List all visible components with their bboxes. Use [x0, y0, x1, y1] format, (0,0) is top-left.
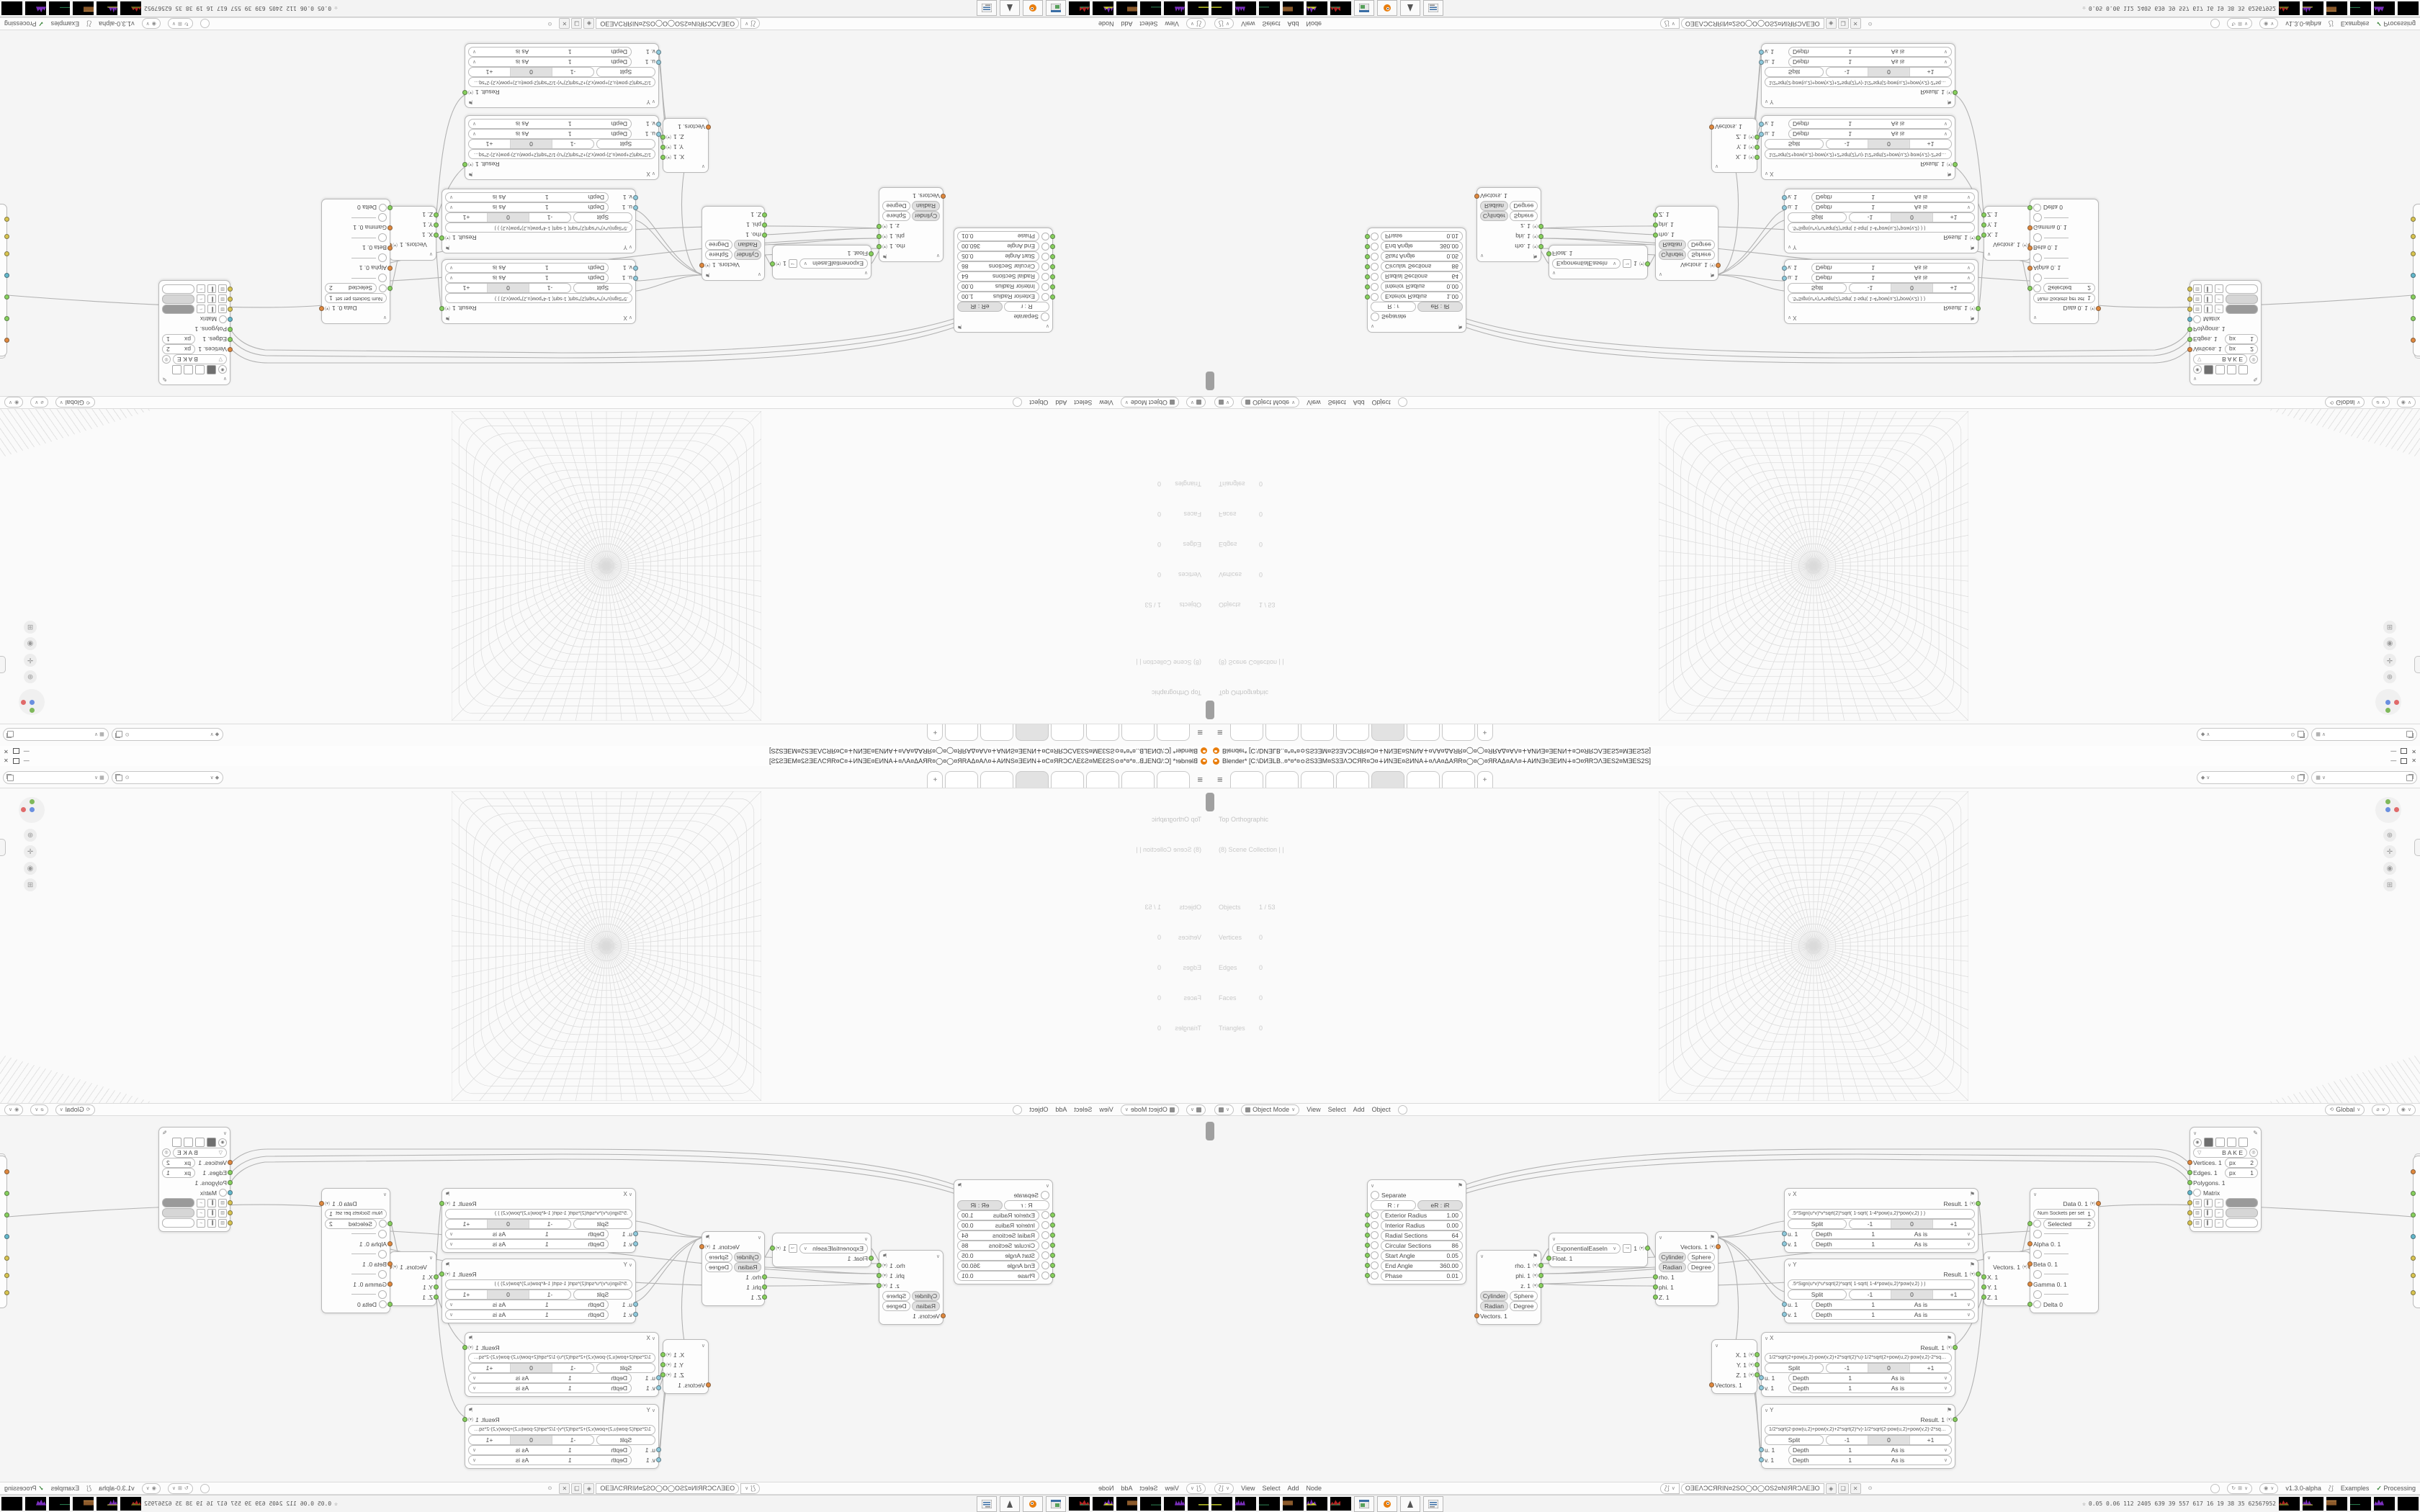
display-verts-toggle[interactable] [2204, 365, 2213, 374]
workspace-tab[interactable] [1301, 771, 1334, 788]
face-color-swatch[interactable] [2226, 284, 2258, 294]
input-socket[interactable] [2187, 1190, 2192, 1195]
input-socket[interactable] [941, 1313, 946, 1318]
monitor-tile[interactable] [1307, 1497, 1327, 1511]
coord-mode-toggle[interactable]: CylinderSphere [1480, 212, 1538, 222]
wrap-segment[interactable]: -10+1 [468, 1363, 594, 1373]
unlink-button[interactable]: ✕ [559, 19, 570, 30]
menu-add[interactable]: Add [1055, 399, 1067, 406]
input-socket[interactable] [387, 1302, 393, 1307]
output-socket[interactable] [1976, 1272, 1981, 1277]
coord-mode-toggle[interactable]: CylinderSphere [705, 1252, 761, 1262]
edge-width-field[interactable]: px1 [2225, 335, 2258, 345]
coord-mode-toggle[interactable]: CylinderSphere [1659, 251, 1715, 261]
depth-field[interactable]: Depth1As is∨ [1788, 58, 1952, 68]
input-socket[interactable] [1365, 1223, 1370, 1228]
display-edges-toggle[interactable] [2215, 365, 2225, 374]
input-socket[interactable] [1365, 264, 1370, 269]
node-formula-y[interactable]: ∨ Y⚑ Result. 1(▾) .5*Sign(u*v)*u*sqrt(2)… [1784, 189, 1978, 253]
input-socket[interactable] [1365, 284, 1370, 289]
output-socket[interactable] [1538, 244, 1543, 249]
input-socket[interactable] [1365, 1273, 1370, 1278]
output-socket[interactable] [319, 306, 324, 311]
node-viewer-draw[interactable]: ∨✎ ◉ ▽B A K E◎ Vertices. 1px2 Edges. 1px… [2190, 1127, 2262, 1232]
input-socket[interactable] [1759, 122, 1764, 127]
input-socket[interactable] [1365, 1233, 1370, 1238]
monitor-tile[interactable] [2350, 1, 2371, 15]
formula-field[interactable]: .5*Sign(u*v)*v*sqrt(2)*sqrt( 1-sqrt( 1-4… [445, 294, 632, 304]
input-socket[interactable] [1653, 233, 1658, 238]
edge-color-swatch[interactable] [2226, 1208, 2258, 1218]
monitor-tile[interactable] [1116, 1, 1137, 15]
output-socket[interactable] [660, 155, 665, 160]
param-field[interactable]: Radial Sections64 [957, 272, 1039, 282]
monitor-tile[interactable] [1211, 1497, 1232, 1511]
input-socket[interactable] [1050, 1273, 1055, 1278]
restore-button[interactable] [13, 748, 19, 754]
input-socket[interactable] [434, 1284, 439, 1290]
camera-view-icon[interactable]: ◉ [24, 862, 37, 875]
display-edges-toggle[interactable] [195, 365, 205, 374]
separate-toggle[interactable]: Separate [1381, 314, 1407, 321]
selected-field[interactable]: Selected2 [2043, 284, 2095, 294]
add-workspace-button[interactable]: + [927, 724, 943, 741]
point-size-field[interactable]: px2 [162, 1158, 195, 1168]
new-viewlayer-icon[interactable] [7, 775, 14, 781]
input-socket[interactable] [656, 1375, 661, 1380]
node-viewer-draw[interactable]: ∨✎ ◉ ▽B A K E◎ Vertices. 1px2 Edges. 1px… [2190, 280, 2262, 385]
snap-dropdown[interactable]: ⌀∨ [30, 1104, 48, 1115]
sverchok-node-editor[interactable]: ∨⚑ Separate R : reR : iR Exterior Radius… [1210, 1116, 2420, 1482]
draw-mode-dropdown[interactable]: ◉∨ [2259, 1483, 2278, 1494]
processing-toggle[interactable]: ✓ Processing [4, 20, 44, 28]
viewlayer-selector[interactable]: ▦∨ [2311, 771, 2417, 784]
editor-type-button[interactable]: ⟅⟆∨ [1214, 19, 1234, 30]
param-field[interactable]: Circular Sections86 [957, 262, 1039, 272]
node-formula-y[interactable]: ∨ Y⚑ Result. 1(▾) .5*Sign(u*v)*u*sqrt(2)… [1784, 1259, 1978, 1323]
copy-datablock-button[interactable]: ❏ [1838, 19, 1849, 30]
wrap-segment[interactable]: -10+1 [445, 1219, 571, 1229]
menu-node[interactable]: Node [1098, 20, 1114, 27]
draw-mode-dropdown[interactable]: ◉∨ [142, 19, 161, 30]
display-curve-toggle[interactable] [172, 365, 181, 374]
add-workspace-button[interactable]: + [1477, 771, 1493, 788]
wrap-segment[interactable]: -10+1 [1826, 1435, 1952, 1445]
param-field[interactable]: Phase0.01 [957, 1271, 1039, 1281]
monitor-tile[interactable] [73, 1497, 94, 1511]
input-socket[interactable] [2187, 1200, 2192, 1205]
axis-y-dot[interactable] [30, 799, 35, 804]
workspace-tab[interactable] [1442, 724, 1475, 741]
tree-name-field[interactable]: OƎEΛƆCЯRIN¤2SO◯O◯OS2¤NIЯRƆΛEƎO [1681, 1483, 1824, 1494]
hamburger-menu-icon[interactable]: ≡ [1197, 727, 1203, 738]
camera-view-icon[interactable]: ◉ [2383, 637, 2396, 650]
workspace-tab[interactable] [1230, 771, 1263, 788]
input-socket[interactable] [1365, 244, 1370, 249]
ortho-toggle-icon[interactable]: ⊞ [2383, 878, 2396, 891]
output-socket[interactable] [1538, 1263, 1543, 1268]
param-field[interactable]: End Angle360.00 [957, 1261, 1039, 1271]
input-socket[interactable] [2187, 347, 2192, 352]
minimize-button[interactable]: — [2390, 758, 2396, 764]
tree-browse-button[interactable]: ⟅⟆∨ [1660, 19, 1680, 30]
node-tree-selector[interactable]: ⟅⟆∨ OƎEΛƆCЯRIN¤2SO◯O◯OS2¤NIЯRƆΛEƎO ◈ ❏ ✕ [559, 19, 760, 30]
input-socket[interactable] [941, 194, 946, 199]
node-vector-in[interactable]: ∨ Vectors. 1(▾) X. 1 Y. 1 Z. 1 [1984, 206, 2031, 261]
workspace-tab[interactable] [1051, 771, 1084, 788]
input-socket[interactable] [228, 337, 233, 342]
easing-mode-dropdown[interactable]: ExponentialEaseIn∨ [799, 1243, 868, 1254]
num-sockets-field[interactable]: Num Sockets per set1 [325, 294, 387, 304]
face-color-swatch[interactable] [162, 1218, 194, 1228]
depth-field[interactable]: Depth1As is∨ [468, 130, 632, 140]
monitor-tile[interactable] [1188, 1497, 1209, 1511]
tree-browse-button[interactable]: ⟅⟆∨ [1660, 1483, 1680, 1494]
depth-field[interactable]: Depth1As is∨ [445, 203, 609, 213]
split-button[interactable]: Split [1765, 68, 1824, 78]
mode-dropdown[interactable]: Object Mode∨ [1121, 397, 1179, 408]
input-socket[interactable] [1546, 251, 1551, 256]
output-socket[interactable] [770, 261, 775, 266]
node-vector-in[interactable]: ∨ Vectors. 1(▾) X. 1 Y. 1 Z. 1 [1984, 1251, 2031, 1306]
annotate-circle-icon[interactable] [1398, 398, 1407, 408]
vertex-color-swatch[interactable] [162, 1198, 194, 1207]
split-button[interactable]: Split [573, 213, 632, 223]
copy-datablock-button[interactable]: ❏ [1838, 1483, 1849, 1494]
output-socket[interactable] [1716, 1244, 1721, 1249]
param-field[interactable]: Phase0.01 [1381, 232, 1463, 242]
input-socket[interactable] [869, 251, 874, 256]
input-socket[interactable] [1759, 132, 1764, 137]
input-socket[interactable] [656, 122, 661, 127]
node-input-switch[interactable]: ∨ Data 0. 1(▾) Num Sockets per set1 Sele… [2030, 1188, 2099, 1313]
examples-menu[interactable]: Examples [51, 1485, 80, 1492]
menu-view[interactable]: View [1307, 399, 1320, 406]
angle-mode-toggle[interactable]: RadianDegree [882, 202, 940, 212]
node-formula-y[interactable]: ∨ Y⚑ Result. 1(▾) .5*Sign(u*v)*u*sqrt(2)… [442, 189, 636, 253]
monitor-tile[interactable] [2326, 1497, 2347, 1511]
input-socket[interactable] [228, 1170, 233, 1175]
monitor-tile[interactable] [1, 1497, 22, 1511]
workspace-tab-active[interactable] [1016, 724, 1049, 741]
node-formula-y2[interactable]: ∨ Y⚑ Result. 1(▾) 1/2*sqrt(2-pow(u,2)+po… [465, 43, 659, 108]
param-field[interactable]: Interior Radius0.00 [957, 1220, 1039, 1230]
formula-field[interactable]: 1/2*sqrt(2-pow(u,2)+pow(v,2)+2*sqrt(2)*v… [468, 1425, 655, 1435]
output-socket[interactable] [699, 263, 704, 268]
input-socket[interactable] [1050, 234, 1055, 239]
node-offscreen[interactable] [2413, 1156, 2420, 1308]
edge-color-swatch[interactable] [162, 1208, 194, 1218]
workspace-tab[interactable] [1265, 771, 1299, 788]
angle-mode-toggle[interactable]: RadianDegree [1659, 1262, 1715, 1272]
node-torus[interactable]: ∨⚑ Separate R : reR : iR Exterior Radius… [1367, 228, 1466, 333]
input-socket[interactable] [228, 1190, 233, 1195]
input-socket[interactable] [1782, 1312, 1787, 1317]
processing-toggle[interactable]: ✓ Processing [2376, 1485, 2416, 1493]
taskbar-app-window2[interactable] [977, 1, 997, 17]
torus-mode-toggle[interactable]: R : reR : iR [957, 302, 1049, 312]
output-socket[interactable] [1976, 1201, 1981, 1206]
menu-view[interactable]: View [1165, 1485, 1178, 1492]
split-button[interactable]: Split [1765, 1435, 1824, 1445]
add-workspace-button[interactable]: + [927, 771, 943, 788]
split-button[interactable]: Split [1765, 140, 1824, 150]
wrap-segment[interactable]: -10+1 [445, 284, 571, 294]
menu-add[interactable]: Add [1353, 399, 1365, 406]
depth-field[interactable]: Depth1As is∨ [1788, 1455, 1952, 1465]
fake-user-shield-button[interactable]: ◈ [583, 19, 594, 30]
output-socket[interactable] [1754, 1362, 1760, 1367]
menu-object[interactable]: Object [1029, 1106, 1048, 1113]
input-socket[interactable] [633, 1302, 638, 1307]
output-socket[interactable] [1754, 1352, 1760, 1357]
viewport-3d[interactable]: Top Orthographic (8) Scene Collection | … [1210, 788, 2420, 1103]
display-curve-toggle[interactable] [2238, 365, 2248, 374]
face-color-swatch[interactable] [162, 284, 194, 294]
input-socket[interactable] [1981, 1295, 1986, 1300]
fake-user-shield-button[interactable]: ◈ [583, 1483, 594, 1494]
output-socket[interactable] [1645, 1246, 1650, 1251]
draw-mode-dropdown[interactable]: ◉∨ [2259, 19, 2278, 30]
monitor-tile[interactable] [2398, 1497, 2419, 1511]
taskbar-blender-app[interactable] [1377, 1496, 1397, 1512]
depth-field[interactable]: Depth1As is∨ [1811, 1239, 1975, 1249]
tree-name-field[interactable]: OƎEΛƆCЯRIN¤2SO◯O◯OS2¤NIЯRƆΛEƎO [596, 19, 739, 30]
monitor-tile[interactable] [2350, 1497, 2371, 1511]
input-socket[interactable] [1782, 205, 1787, 210]
output-socket[interactable] [1976, 235, 1981, 240]
fake-user-shield-button[interactable]: ◈ [1826, 1483, 1837, 1494]
editor-type-button[interactable]: ∨ [1186, 1104, 1206, 1115]
update-circle-icon[interactable] [200, 1484, 210, 1493]
editor-type-button[interactable]: ∨ [1214, 1104, 1234, 1115]
input-socket[interactable] [1759, 60, 1764, 65]
workspace-tab[interactable] [1230, 724, 1263, 741]
formula-field[interactable]: .5*Sign(u*v)*u*sqrt(2)*sqrt( 1-sqrt( 1-4… [445, 1279, 632, 1290]
system-monitor-toggle[interactable]: ☆ [334, 5, 338, 12]
scene-name-field[interactable] [131, 730, 210, 739]
menu-add[interactable]: Add [1288, 20, 1299, 27]
camera-view-icon[interactable]: ◉ [24, 637, 37, 650]
add-workspace-button[interactable]: + [1477, 724, 1493, 741]
edge-color-swatch[interactable] [2226, 294, 2258, 304]
wrap-segment[interactable]: -10+1 [468, 68, 594, 78]
node-viewer-draw[interactable]: ∨✎ ◉ ▽B A K E◎ Vertices. 1px2 Edges. 1px… [158, 1127, 230, 1232]
input-socket[interactable] [762, 1295, 767, 1300]
display-faces-toggle[interactable] [2227, 1138, 2236, 1147]
update-circle-icon[interactable] [2210, 19, 2220, 29]
node-formula-y[interactable]: ∨ Y⚑ Result. 1(▾) .5*Sign(u*v)*u*sqrt(2)… [442, 1259, 636, 1323]
pin-icon[interactable]: ⊙ [125, 732, 130, 737]
menu-add[interactable]: Add [1121, 20, 1132, 27]
input-socket[interactable] [387, 1241, 393, 1246]
split-button[interactable]: Split [1788, 1219, 1847, 1229]
tree-browse-button[interactable]: ⟅⟆∨ [740, 1483, 760, 1494]
input-socket[interactable] [1050, 1243, 1055, 1248]
node-vector-out[interactable]: ∨ X. 1(▾) Y. 1(▾) Z. 1(▾) Vectors. 1 [1711, 1339, 1757, 1394]
input-socket[interactable] [228, 1200, 233, 1205]
sverchok-node-editor[interactable]: ∨⚑ Separate R : reR : iR Exterior Radius… [1210, 30, 2420, 396]
node-tree-selector[interactable]: ⟅⟆∨ OƎEΛƆCЯRIN¤2SO◯O◯OS2¤NIЯRƆΛEƎO ◈ ❏ ✕ [1660, 1483, 1861, 1494]
input-socket[interactable] [1759, 1447, 1764, 1452]
workspace-tab[interactable] [945, 771, 978, 788]
input-socket[interactable] [633, 1241, 638, 1246]
zoom-tool-icon[interactable]: ⊕ [2383, 670, 2396, 683]
input-socket[interactable] [2187, 287, 2192, 292]
scene-selector[interactable]: ◆∨ ⊙ [112, 728, 223, 741]
taskbar-app-window[interactable] [1046, 1, 1066, 17]
formula-field[interactable]: 1/2*sqrt(2-pow(u,2)+pow(v,2)+2*sqrt(2)*v… [1765, 78, 1952, 88]
output-socket[interactable] [1953, 162, 1958, 167]
pin-icon[interactable]: ⊙ [547, 1485, 552, 1491]
taskbar-app-dark[interactable] [1000, 1496, 1020, 1512]
monitor-tile[interactable] [1211, 1, 1232, 15]
depth-field[interactable]: Depth1As is∨ [445, 1310, 609, 1320]
node-formula-y2[interactable]: ∨ Y⚑ Result. 1(▾) 1/2*sqrt(2-pow(u,2)+po… [1761, 1404, 1955, 1469]
param-field[interactable]: Exterior Radius1.00 [1381, 1210, 1463, 1220]
input-socket[interactable] [1759, 50, 1764, 55]
annotate-circle-icon[interactable] [1013, 398, 1022, 408]
monitor-tile[interactable] [25, 1, 46, 15]
viewlayer-selector[interactable]: ▦∨ [3, 728, 109, 741]
workspace-tab[interactable] [1407, 771, 1440, 788]
depth-field[interactable]: Depth1As is∨ [1788, 48, 1952, 58]
scene-selector[interactable]: ◆∨ ⊙ [2197, 771, 2308, 784]
menu-node[interactable]: Node [1307, 1485, 1322, 1492]
input-socket[interactable] [1474, 1313, 1479, 1318]
viewlayer-name-field[interactable] [2326, 730, 2405, 739]
depth-field[interactable]: Depth1As is∨ [1811, 1300, 1975, 1310]
split-button[interactable]: Split [596, 1363, 655, 1373]
param-field[interactable]: End Angle360.00 [1381, 1261, 1463, 1271]
vertex-color-swatch[interactable] [162, 305, 194, 314]
input-socket[interactable] [2187, 1210, 2192, 1215]
selected-field[interactable]: Selected2 [325, 1219, 377, 1229]
input-socket[interactable] [228, 297, 233, 302]
point-size-field[interactable]: px2 [162, 345, 195, 355]
input-socket[interactable] [1981, 1284, 1986, 1290]
monitor-tile[interactable] [2374, 1497, 2395, 1511]
input-socket[interactable] [228, 287, 233, 292]
input-socket[interactable] [228, 317, 233, 322]
axis-x-dot[interactable] [2394, 807, 2399, 812]
menu-add[interactable]: Add [1121, 1485, 1132, 1492]
input-socket[interactable] [2027, 266, 2033, 271]
copy-datablock-button[interactable]: ❏ [571, 1483, 582, 1494]
output-socket[interactable] [462, 90, 467, 95]
input-socket[interactable] [387, 246, 393, 251]
monitor-tile[interactable] [1, 1, 22, 15]
monitor-tile[interactable] [2398, 1, 2419, 15]
input-socket[interactable] [1050, 244, 1055, 249]
monitor-tile[interactable] [1140, 1, 1161, 15]
output-socket[interactable] [439, 1201, 444, 1206]
viewlayer-name-field[interactable] [15, 773, 94, 782]
input-socket[interactable] [1050, 264, 1055, 269]
output-socket[interactable] [770, 1246, 775, 1251]
param-field[interactable]: Start Angle0.05 [1381, 1251, 1463, 1261]
node-formula-y2[interactable]: ∨ Y⚑ Result. 1(▾) 1/2*sqrt(2-pow(u,2)+po… [465, 1404, 659, 1469]
param-field[interactable]: Start Angle0.05 [1381, 252, 1463, 262]
input-socket[interactable] [762, 1274, 767, 1279]
input-socket[interactable] [228, 327, 233, 332]
close-button[interactable]: ✕ [4, 748, 9, 754]
taskbar-app-window2[interactable] [977, 1496, 997, 1512]
monitor-tile[interactable] [1164, 1, 1185, 15]
taskbar-app-window2[interactable] [1423, 1, 1443, 17]
mode-dropdown[interactable]: Object Mode∨ [1241, 397, 1299, 408]
workspace-tab[interactable] [980, 771, 1013, 788]
depth-field[interactable]: Depth1As is∨ [468, 1383, 632, 1393]
node-offscreen[interactable] [0, 1156, 7, 1308]
input-socket[interactable] [762, 222, 767, 228]
pin-icon[interactable]: ⊙ [2290, 732, 2295, 737]
param-field[interactable]: Interior Radius0.00 [1381, 1220, 1463, 1230]
wrap-segment[interactable]: -10+1 [468, 1435, 594, 1445]
input-socket[interactable] [656, 60, 661, 65]
workspace-tab[interactable] [1051, 724, 1084, 741]
viewlayer-name-field[interactable] [2326, 773, 2405, 782]
ortho-toggle-icon[interactable]: ⊞ [24, 621, 37, 634]
navigation-gizmo[interactable] [19, 797, 45, 823]
monitor-tile[interactable] [1330, 1, 1351, 15]
depth-field[interactable]: Depth1As is∨ [1788, 1383, 1952, 1393]
param-field[interactable]: Radial Sections64 [1381, 272, 1463, 282]
param-field[interactable]: Start Angle0.05 [957, 1251, 1039, 1261]
input-socket[interactable] [2027, 225, 2033, 230]
viewlayer-name-field[interactable] [15, 730, 94, 739]
output-socket[interactable] [1754, 145, 1760, 150]
workspace-tab-active[interactable] [1016, 771, 1049, 788]
input-socket[interactable] [1981, 233, 1986, 238]
edge-width-field[interactable]: px1 [162, 1168, 195, 1178]
monitor-tile[interactable] [1283, 1497, 1304, 1511]
output-socket[interactable] [877, 1283, 882, 1288]
depth-field[interactable]: Depth1As is∨ [468, 1373, 632, 1383]
input-socket[interactable] [762, 212, 767, 217]
input-socket[interactable] [2187, 297, 2192, 302]
move-view-icon[interactable]: ✛ [24, 845, 37, 858]
input-socket[interactable] [434, 1295, 439, 1300]
split-button[interactable]: Split [573, 1290, 632, 1300]
monitor-tile[interactable] [2303, 1497, 2323, 1511]
bake-button[interactable]: ▽B A K E [173, 355, 227, 365]
minimize-button[interactable]: — [2390, 748, 2396, 754]
workspace-tab[interactable] [1121, 724, 1155, 741]
node-viewer-draw[interactable]: ∨✎ ◉ ▽B A K E◎ Vertices. 1px2 Edges. 1px… [158, 280, 230, 385]
param-field[interactable]: Interior Radius0.00 [1381, 282, 1463, 292]
workspace-tab[interactable] [945, 724, 978, 741]
output-socket[interactable] [660, 135, 665, 140]
input-socket[interactable] [228, 1180, 233, 1185]
depth-field[interactable]: Depth1As is∨ [445, 1229, 609, 1239]
depth-field[interactable]: Depth1As is∨ [1811, 193, 1975, 203]
node-input-switch[interactable]: ∨ Data 0. 1(▾) Num Sockets per set1 Sele… [2030, 199, 2099, 324]
depth-field[interactable]: Depth1As is∨ [445, 1239, 609, 1249]
output-socket[interactable] [1953, 1345, 1958, 1350]
split-button[interactable]: Split [1788, 213, 1847, 223]
menu-select[interactable]: Select [1263, 1485, 1281, 1492]
sverchok-node-editor[interactable]: ∨⚑ Separate R : reR : iR Exterior Radius… [0, 1116, 1210, 1482]
monitor-tile[interactable] [2303, 1, 2323, 15]
output-socket[interactable] [1754, 155, 1760, 160]
param-field[interactable]: Radial Sections64 [1381, 1230, 1463, 1241]
hamburger-menu-icon[interactable]: ≡ [1217, 774, 1223, 785]
navigation-gizmo[interactable] [2375, 797, 2401, 823]
formula-field[interactable]: 1/2*sqrt(2-pow(u,2)+pow(v,2)+2*sqrt(2)*v… [1765, 1425, 1952, 1435]
depth-field[interactable]: Depth1As is∨ [1811, 274, 1975, 284]
wrap-segment[interactable]: -10+1 [468, 140, 594, 150]
